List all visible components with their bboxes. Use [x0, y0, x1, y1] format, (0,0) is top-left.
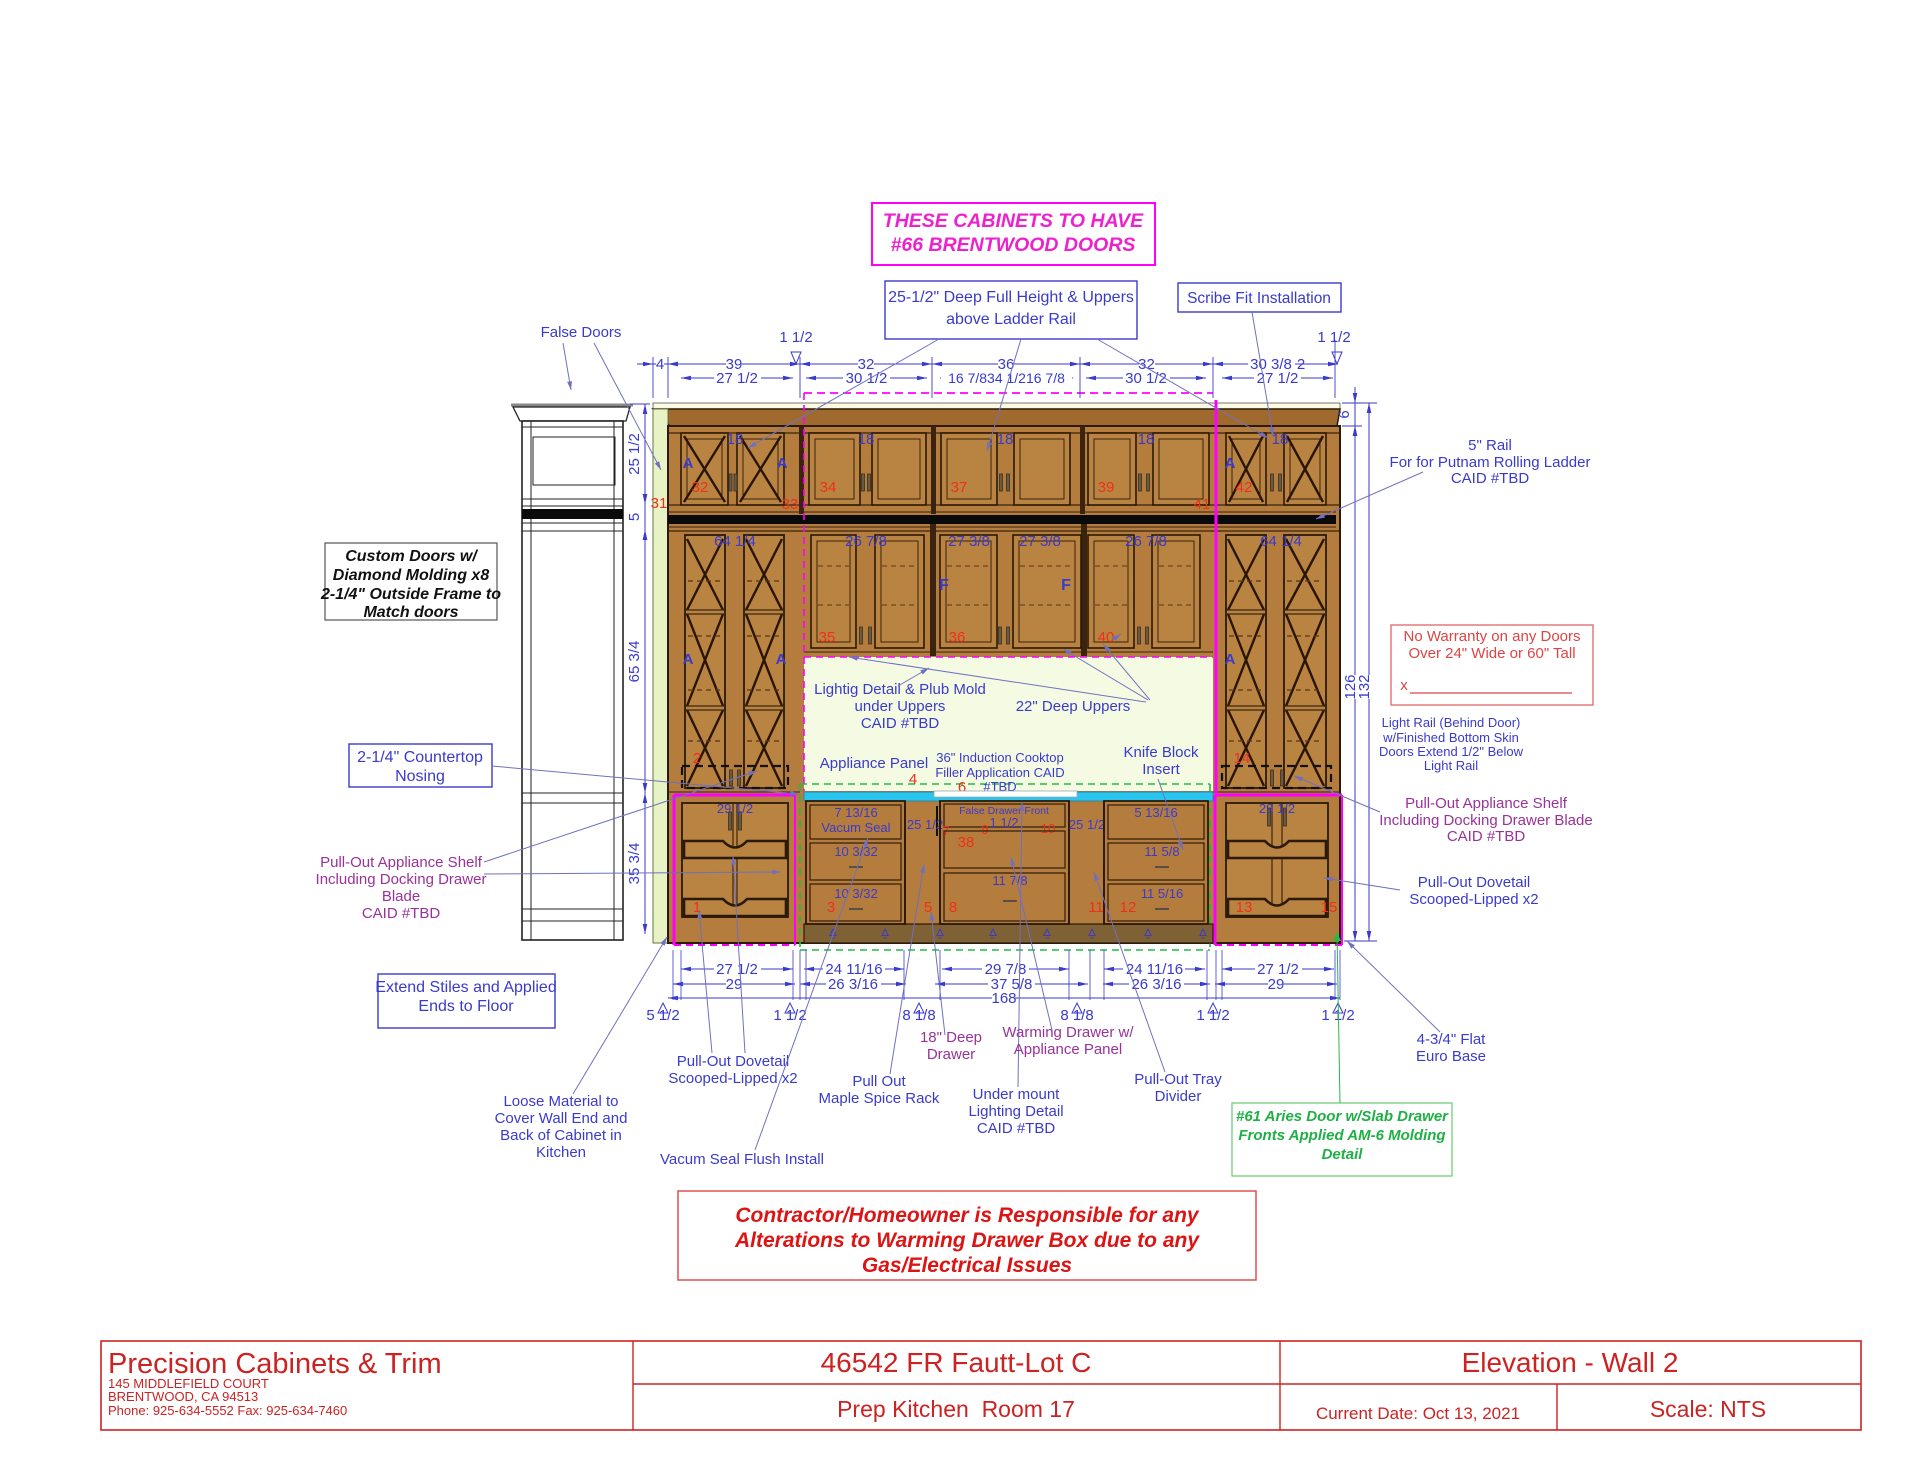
svg-text:No Warranty on any Doors: No Warranty on any Doors — [1403, 628, 1580, 645]
svg-text:1 1/2: 1 1/2 — [1196, 1007, 1229, 1024]
svg-text:Light Rail (Behind Door): Light Rail (Behind Door) — [1382, 715, 1521, 730]
svg-text:Match doors: Match doors — [363, 604, 458, 621]
svg-text:27 3/8: 27 3/8 — [1019, 533, 1061, 550]
svg-text:10: 10 — [1041, 821, 1055, 836]
svg-text:A: A — [1225, 455, 1236, 472]
svg-text:Appliance Panel: Appliance Panel — [1014, 1041, 1122, 1058]
svg-text:CAID #TBD: CAID #TBD — [977, 1120, 1056, 1137]
svg-text:Drawer: Drawer — [927, 1046, 975, 1063]
svg-text:10 3/32: 10 3/32 — [834, 886, 877, 901]
svg-text:26 7/8: 26 7/8 — [1125, 533, 1167, 550]
svg-text:#66 BRENTWOOD DOORS: #66 BRENTWOOD DOORS — [891, 234, 1136, 256]
svg-text:Contractor/Homeowner is Respon: Contractor/Homeowner is Responsible for … — [735, 1204, 1200, 1227]
svg-text:Pull-Out Tray: Pull-Out Tray — [1134, 1071, 1222, 1088]
svg-text:Euro Base: Euro Base — [1416, 1048, 1486, 1065]
svg-text:Vacum Seal: Vacum Seal — [821, 820, 890, 835]
svg-text:32: 32 — [692, 479, 709, 496]
svg-text:7 13/16: 7 13/16 — [834, 805, 877, 820]
svg-text:Lightig Detail & Plub Mold: Lightig Detail & Plub Mold — [814, 681, 986, 698]
svg-text:1 1/2: 1 1/2 — [779, 329, 812, 346]
svg-text:25 1/2: 25 1/2 — [1069, 817, 1105, 832]
svg-text:35: 35 — [819, 629, 836, 646]
svg-text:Pull-Out Dovetail: Pull-Out Dovetail — [1418, 874, 1531, 891]
svg-text:25 1/2: 25 1/2 — [907, 817, 943, 832]
svg-text:Including Docking Drawer: Including Docking Drawer — [316, 871, 487, 888]
svg-text:F: F — [1061, 577, 1071, 594]
svg-text:25 1/2: 25 1/2 — [626, 433, 643, 475]
svg-text:w/Finished Bottom Skin: w/Finished Bottom Skin — [1382, 730, 1519, 745]
svg-text:Filler Application CAID: Filler Application CAID — [935, 765, 1064, 780]
svg-text:#61 Aries Door w/Slab Drawer: #61 Aries Door w/Slab Drawer — [1236, 1108, 1449, 1125]
svg-text:40: 40 — [1098, 629, 1115, 646]
svg-text:Loose Material to: Loose Material to — [503, 1093, 618, 1110]
svg-text:Pull Out: Pull Out — [852, 1073, 906, 1090]
svg-text:Elevation - Wall 2: Elevation - Wall 2 — [1462, 1347, 1679, 1378]
svg-text:A: A — [1225, 651, 1236, 668]
svg-text:A: A — [683, 651, 694, 668]
svg-text:22" Deep Uppers: 22" Deep Uppers — [1016, 698, 1131, 715]
svg-text:Light Rail: Light Rail — [1424, 758, 1478, 773]
svg-text:Alterations to Warming Drawer: Alterations to Warming Drawer Box due to… — [734, 1229, 1200, 1252]
svg-text:36" Induction Cooktop: 36" Induction Cooktop — [936, 750, 1063, 765]
svg-text:11 5/8: 11 5/8 — [1144, 844, 1179, 859]
svg-text:A: A — [777, 455, 788, 472]
svg-text:Scooped-Lipped x2: Scooped-Lipped x2 — [1409, 891, 1538, 908]
svg-text:12: 12 — [1120, 899, 1137, 916]
svg-text:For for Putnam Rolling Ladder: For for Putnam Rolling Ladder — [1390, 454, 1591, 471]
svg-text:Knife Block: Knife Block — [1123, 744, 1199, 761]
svg-text:Under mount: Under mount — [973, 1086, 1061, 1103]
svg-text:under Uppers: under Uppers — [855, 698, 946, 715]
svg-text:CAID #TBD: CAID #TBD — [861, 715, 940, 732]
svg-text:2-1/4" Outside Frame to: 2-1/4" Outside Frame to — [320, 586, 501, 603]
svg-text:34: 34 — [820, 479, 837, 496]
svg-text:16 7/834 1/216 7/8: 16 7/834 1/216 7/8 — [948, 370, 1065, 386]
svg-text:A: A — [776, 651, 787, 668]
svg-text:8: 8 — [949, 899, 957, 916]
svg-text:11 7/8: 11 7/8 — [992, 873, 1027, 888]
svg-text:33: 33 — [782, 496, 799, 513]
svg-text:37: 37 — [951, 479, 968, 496]
svg-text:Blade: Blade — [382, 888, 420, 905]
svg-text:Lighting Detail: Lighting Detail — [968, 1103, 1063, 1120]
svg-text:Back of Cabinet in: Back of Cabinet in — [500, 1127, 622, 1144]
svg-text:Divider: Divider — [1155, 1088, 1202, 1105]
svg-text:BRENTWOOD, CA 94513: BRENTWOOD, CA 94513 — [108, 1389, 258, 1404]
svg-text:6: 6 — [1336, 410, 1353, 418]
svg-text:36: 36 — [949, 629, 966, 646]
svg-text:5: 5 — [626, 513, 643, 521]
svg-text:15: 15 — [1321, 899, 1338, 916]
svg-text:39: 39 — [1098, 479, 1115, 496]
svg-text:65 3/4: 65 3/4 — [626, 641, 643, 683]
svg-text:Extend Stiles and Applied: Extend Stiles and Applied — [375, 979, 556, 996]
svg-text:29 1/2: 29 1/2 — [1259, 801, 1295, 816]
svg-text:11: 11 — [1088, 899, 1104, 916]
svg-text:x: x — [1400, 677, 1408, 694]
svg-text:3: 3 — [827, 899, 835, 916]
svg-text:F: F — [939, 577, 949, 594]
svg-text:CAID #TBD: CAID #TBD — [1451, 470, 1530, 487]
svg-text:Cover Wall End and: Cover Wall End and — [495, 1110, 628, 1127]
svg-text:4: 4 — [909, 771, 917, 788]
svg-text:26 3/16: 26 3/16 — [828, 976, 878, 993]
svg-text:Scale: NTS: Scale: NTS — [1650, 1396, 1766, 1422]
svg-text:30 1/2: 30 1/2 — [1125, 370, 1167, 387]
svg-text:CAID #TBD: CAID #TBD — [1447, 828, 1526, 845]
svg-text:18: 18 — [727, 431, 744, 448]
svg-text:Insert: Insert — [1142, 761, 1180, 778]
svg-text:64 1/4: 64 1/4 — [1260, 533, 1302, 550]
svg-text:27 3/8: 27 3/8 — [948, 533, 990, 550]
svg-text:2-1/4" Countertop: 2-1/4" Countertop — [357, 749, 483, 766]
svg-text:41: 41 — [1194, 496, 1211, 513]
svg-text:Including Docking Drawer Blade: Including Docking Drawer Blade — [1379, 812, 1592, 829]
svg-text:26 7/8: 26 7/8 — [845, 533, 887, 550]
svg-text:Current Date: Oct 13, 2021: Current Date: Oct 13, 2021 — [1316, 1404, 1520, 1423]
svg-text:29 1/2: 29 1/2 — [717, 801, 753, 816]
svg-text:Ends to Floor: Ends to Floor — [418, 998, 514, 1015]
svg-text:9: 9 — [981, 822, 988, 837]
svg-text:Pull-Out Appliance Shelf: Pull-Out Appliance Shelf — [320, 854, 483, 871]
svg-text:Kitchen: Kitchen — [536, 1144, 586, 1161]
svg-text:Maple Spice Rack: Maple Spice Rack — [819, 1090, 940, 1107]
svg-text:1 1/2: 1 1/2 — [990, 815, 1019, 830]
svg-text:18: 18 — [1272, 431, 1289, 448]
svg-text:42: 42 — [1236, 479, 1253, 496]
svg-text:Diamond Molding x8: Diamond Molding x8 — [333, 567, 490, 584]
svg-text:38: 38 — [958, 834, 975, 851]
svg-text:Custom Doors w/: Custom Doors w/ — [345, 548, 478, 565]
svg-text:8 1/8: 8 1/8 — [1060, 1007, 1093, 1024]
svg-text:8 1/8: 8 1/8 — [902, 1007, 935, 1024]
svg-text:THESE CABINETS TO HAVE: THESE CABINETS TO HAVE — [883, 210, 1144, 232]
svg-text:29: 29 — [1268, 976, 1285, 993]
svg-text:2: 2 — [693, 750, 701, 767]
svg-text:above Ladder Rail: above Ladder Rail — [946, 311, 1076, 328]
svg-text:46542 FR Fautt-Lot C: 46542 FR Fautt-Lot C — [821, 1347, 1092, 1378]
svg-text:29: 29 — [726, 976, 743, 993]
svg-text:31: 31 — [651, 495, 668, 512]
svg-text:Appliance Panel: Appliance Panel — [820, 755, 928, 772]
svg-text:Pull-Out Appliance Shelf: Pull-Out Appliance Shelf — [1405, 795, 1568, 812]
svg-text:Nosing: Nosing — [395, 768, 445, 785]
svg-text:5" Rail: 5" Rail — [1468, 437, 1512, 454]
svg-text:Prep Kitchen Room 17: Prep Kitchen Room 17 — [837, 1396, 1075, 1422]
svg-text:Phone: 925-634-5552 Fax: 925-6: Phone: 925-634-5552 Fax: 925-634-7460 — [108, 1403, 347, 1418]
svg-text:18: 18 — [858, 431, 875, 448]
svg-text:CAID #TBD: CAID #TBD — [362, 905, 441, 922]
svg-text:18: 18 — [1138, 431, 1155, 448]
svg-text:26 3/16: 26 3/16 — [1131, 976, 1181, 993]
svg-text:Detail: Detail — [1322, 1146, 1364, 1163]
svg-text:Warming Drawer w/: Warming Drawer w/ — [1002, 1024, 1134, 1041]
svg-text:False Doors: False Doors — [541, 324, 622, 341]
svg-text:Vacum Seal Flush Install: Vacum Seal Flush Install — [660, 1151, 824, 1168]
svg-text:10 3/32: 10 3/32 — [834, 844, 877, 859]
svg-text:Gas/Electrical Issues: Gas/Electrical Issues — [862, 1254, 1072, 1277]
svg-text:4: 4 — [656, 356, 664, 373]
svg-text:25-1/2" Deep Full Height & Upp: 25-1/2" Deep Full Height & Uppers — [888, 289, 1134, 306]
svg-text:A: A — [683, 455, 694, 472]
svg-text:1 1/2: 1 1/2 — [1317, 329, 1350, 346]
svg-text:14: 14 — [1234, 750, 1251, 767]
svg-text:18" Deep: 18" Deep — [920, 1029, 982, 1046]
svg-text:Pull-Out Dovetail: Pull-Out Dovetail — [677, 1053, 790, 1070]
svg-text:Scribe Fit Installation: Scribe Fit Installation — [1187, 290, 1331, 307]
svg-text:Doors Extend 1/2" Below: Doors Extend 1/2" Below — [1379, 744, 1524, 759]
svg-text:Over 24" Wide or 60" Tall: Over 24" Wide or 60" Tall — [1408, 645, 1575, 662]
svg-text:5 1/2: 5 1/2 — [646, 1007, 679, 1024]
svg-text:168: 168 — [991, 990, 1016, 1007]
svg-text:13: 13 — [1236, 899, 1253, 916]
svg-text:64 1/4: 64 1/4 — [714, 533, 756, 550]
svg-text:11 5/16: 11 5/16 — [1141, 886, 1183, 901]
svg-text:132: 132 — [1356, 674, 1373, 699]
svg-text:4-3/4" Flat: 4-3/4" Flat — [1417, 1031, 1487, 1048]
svg-text:27 1/2: 27 1/2 — [716, 370, 758, 387]
svg-text:35 3/4: 35 3/4 — [626, 843, 643, 885]
svg-text:18: 18 — [997, 431, 1014, 448]
svg-text:Fronts Applied AM-6 Molding: Fronts Applied AM-6 Molding — [1238, 1127, 1445, 1144]
